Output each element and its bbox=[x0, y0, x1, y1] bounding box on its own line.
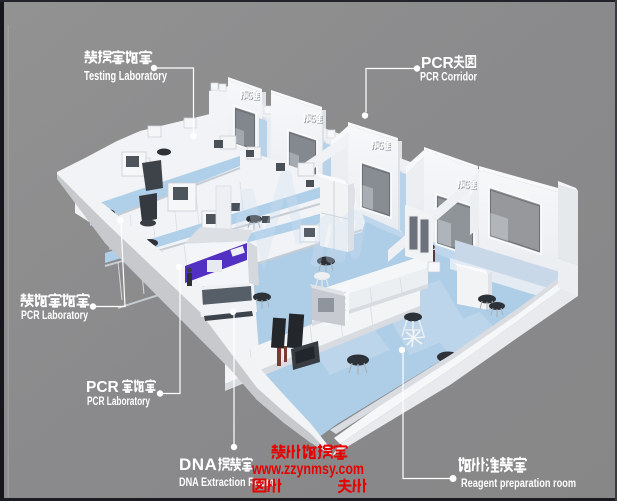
svg-text:PCR Laboratory: PCR Laboratory bbox=[21, 310, 88, 322]
svg-text:Reagent preparation room: Reagent preparation room bbox=[461, 478, 576, 490]
svg-text:PCR: PCR bbox=[421, 55, 454, 72]
svg-text:www.zzynmsy.com: www.zzynmsy.com bbox=[251, 461, 364, 478]
svg-text:PCR: PCR bbox=[86, 379, 119, 396]
svg-text:PCR Laboratory: PCR Laboratory bbox=[87, 396, 150, 408]
svg-text:DNA: DNA bbox=[179, 455, 217, 474]
svg-text:PCR Corridor: PCR Corridor bbox=[420, 72, 477, 84]
